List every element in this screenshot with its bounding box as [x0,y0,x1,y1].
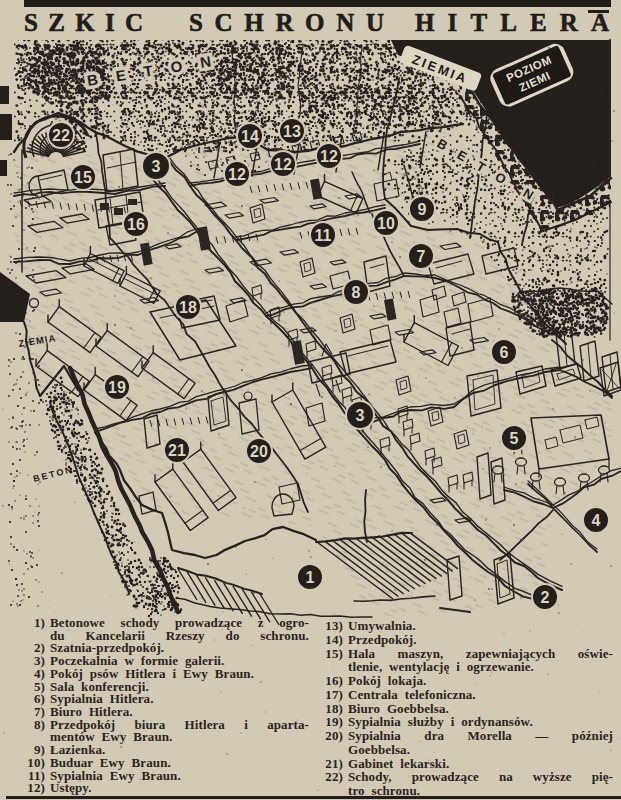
svg-text:16: 16 [127,216,145,233]
svg-text:21: 21 [168,442,186,459]
svg-text:3: 3 [152,158,161,175]
svg-text:5: 5 [510,430,519,447]
svg-text:14: 14 [241,128,259,145]
svg-text:13: 13 [283,123,301,140]
svg-text:9: 9 [418,201,427,218]
svg-text:22: 22 [52,127,70,144]
svg-text:19: 19 [108,379,126,396]
svg-text:4: 4 [592,512,601,529]
svg-text:7: 7 [417,248,426,265]
svg-text:18: 18 [179,299,197,316]
svg-text:20: 20 [250,443,268,460]
svg-text:15: 15 [74,169,92,186]
svg-text:8: 8 [352,284,361,301]
svg-text:2: 2 [541,589,550,606]
svg-text:6: 6 [500,344,509,361]
svg-text:12: 12 [320,148,338,165]
svg-text:10: 10 [377,215,395,232]
svg-text:12: 12 [274,156,292,173]
svg-text:3: 3 [356,407,365,424]
svg-text:12: 12 [228,166,246,183]
svg-text:1: 1 [306,569,315,586]
svg-text:11: 11 [315,227,332,244]
